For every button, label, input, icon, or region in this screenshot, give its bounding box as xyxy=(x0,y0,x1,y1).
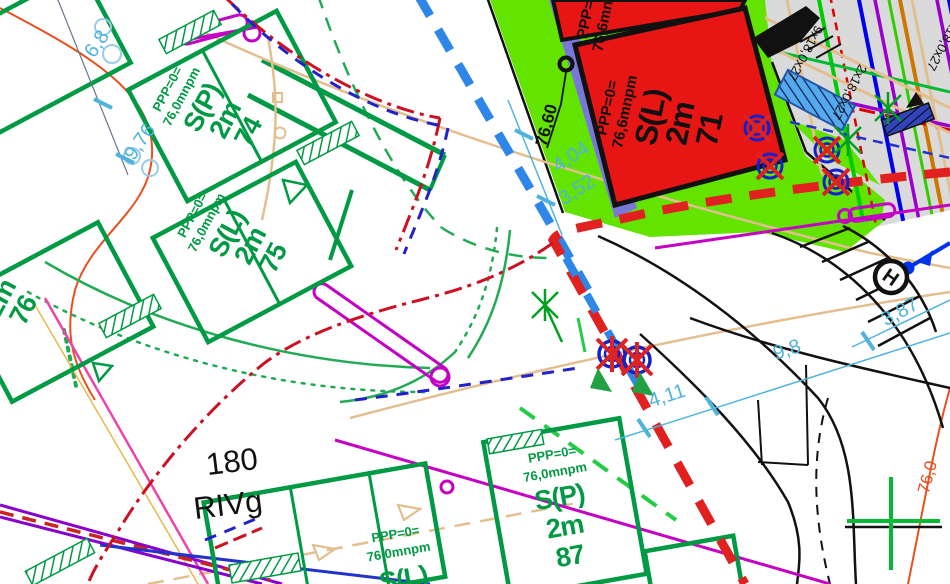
stair-hatches-left xyxy=(99,10,359,337)
contour-label: 76,0 xyxy=(914,459,941,496)
tree-x-symbol xyxy=(597,336,627,372)
stair-hatches-bottom xyxy=(25,429,543,584)
building-77 xyxy=(0,0,131,133)
label-building-88: PPP=0= 76,0mnpm S(L) xyxy=(362,521,437,584)
dim-4-11: 4,11 xyxy=(646,380,688,412)
label-building-87: PPP=0= 76,0mnpm S(P) 2m 87 xyxy=(519,441,604,576)
site-plan-screenshot: H xyxy=(0,0,950,584)
label-number: 87 xyxy=(553,539,586,573)
tree-x-symbol xyxy=(622,342,652,378)
parcel-number: 180 xyxy=(204,441,260,482)
dim-9-8: 9,8 xyxy=(770,335,803,365)
site-plan-svg: H xyxy=(0,0,950,584)
